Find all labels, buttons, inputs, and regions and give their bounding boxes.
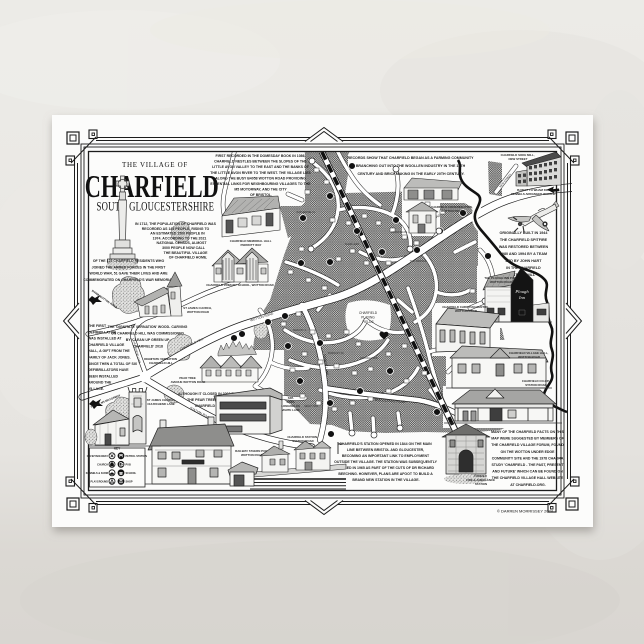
svg-text:MANOR CL: MANOR CL xyxy=(293,328,307,332)
svg-text:ST JAMES CHURCH, WOTTON RO: ST JAMES CHURCH, WOTTON ROAD xyxy=(183,306,212,314)
svg-text:CHARFIELD: CHARFIELD xyxy=(359,311,378,315)
svg-text:CHARFIELD PRIMARY SCHOOL, WOTT: CHARFIELD PRIMARY SCHOOL, WOTTON ROAD xyxy=(206,283,274,287)
svg-text:MANY OF THE CHARFIELD FACTS ON: MANY OF THE CHARFIELD FACTS ON THIS MAP … xyxy=(491,430,565,487)
svg-text:THE SIDINGS: THE SIDINGS xyxy=(410,259,427,263)
svg-text:CAFE/TAKEAWAY: CAFE/TAKEAWAY xyxy=(87,455,109,458)
svg-text:PETROL STATION: PETROL STATION xyxy=(126,455,148,458)
svg-text:DURSLEY CL: DURSLEY CL xyxy=(328,351,345,355)
svg-text:PLAYGROUND: PLAYGROUND xyxy=(90,480,108,483)
svg-text:KEY: KEY xyxy=(114,447,121,451)
svg-text:SCHOOL: SCHOOL xyxy=(126,472,137,475)
svg-text:Plough: Plough xyxy=(514,289,529,294)
svg-text:CHARFIELD: CHARFIELD xyxy=(85,169,219,204)
svg-text:CHARFIELD CO-OP, STATION R: CHARFIELD CO-OP, STATION ROAD xyxy=(522,379,550,387)
svg-text:NEWTOWN: NEWTOWN xyxy=(304,404,318,408)
svg-text:PUB: PUB xyxy=(126,463,131,466)
svg-text:PLAYING: PLAYING xyxy=(361,316,375,320)
svg-text:WOODLANDS: WOODLANDS xyxy=(360,356,377,360)
svg-text:FARM LEES: FARM LEES xyxy=(345,242,360,246)
svg-text:ST JAMES CHURCH CHURCHEND: ST JAMES CHURCH CHURCHEND LANE xyxy=(147,398,176,406)
svg-text:© DARREN MORRISSEY 2024: © DARREN MORRISSEY 2024 xyxy=(497,509,554,514)
svg-text:LONGFIELDS: LONGFIELDS xyxy=(391,230,408,234)
svg-text:SHOP: SHOP xyxy=(126,480,133,483)
svg-text:KENNELS & FARM: KENNELS & FARM xyxy=(86,472,108,475)
svg-text:CHURCH: CHURCH xyxy=(97,463,108,466)
svg-text:SOUTH GLOUCESTERSHIRE: SOUTH GLOUCESTERSHIRE xyxy=(97,200,215,214)
svg-text:RECORDS SHOW THAT CHARFIELD BE: RECORDS SHOW THAT CHARFIELD BEGAN AS A F… xyxy=(347,156,474,176)
svg-text:Inn: Inn xyxy=(518,295,526,300)
svg-text:THE VILLAGE OF: THE VILLAGE OF xyxy=(122,161,188,169)
svg-text:DIGNITATE VERNATION CHARFI: DIGNITATE VERNATION CHARFIELD HILL xyxy=(144,357,178,365)
svg-text:KATHERINE CL: KATHERINE CL xyxy=(297,210,316,214)
svg-text:FIELDS: FIELDS xyxy=(362,320,373,324)
